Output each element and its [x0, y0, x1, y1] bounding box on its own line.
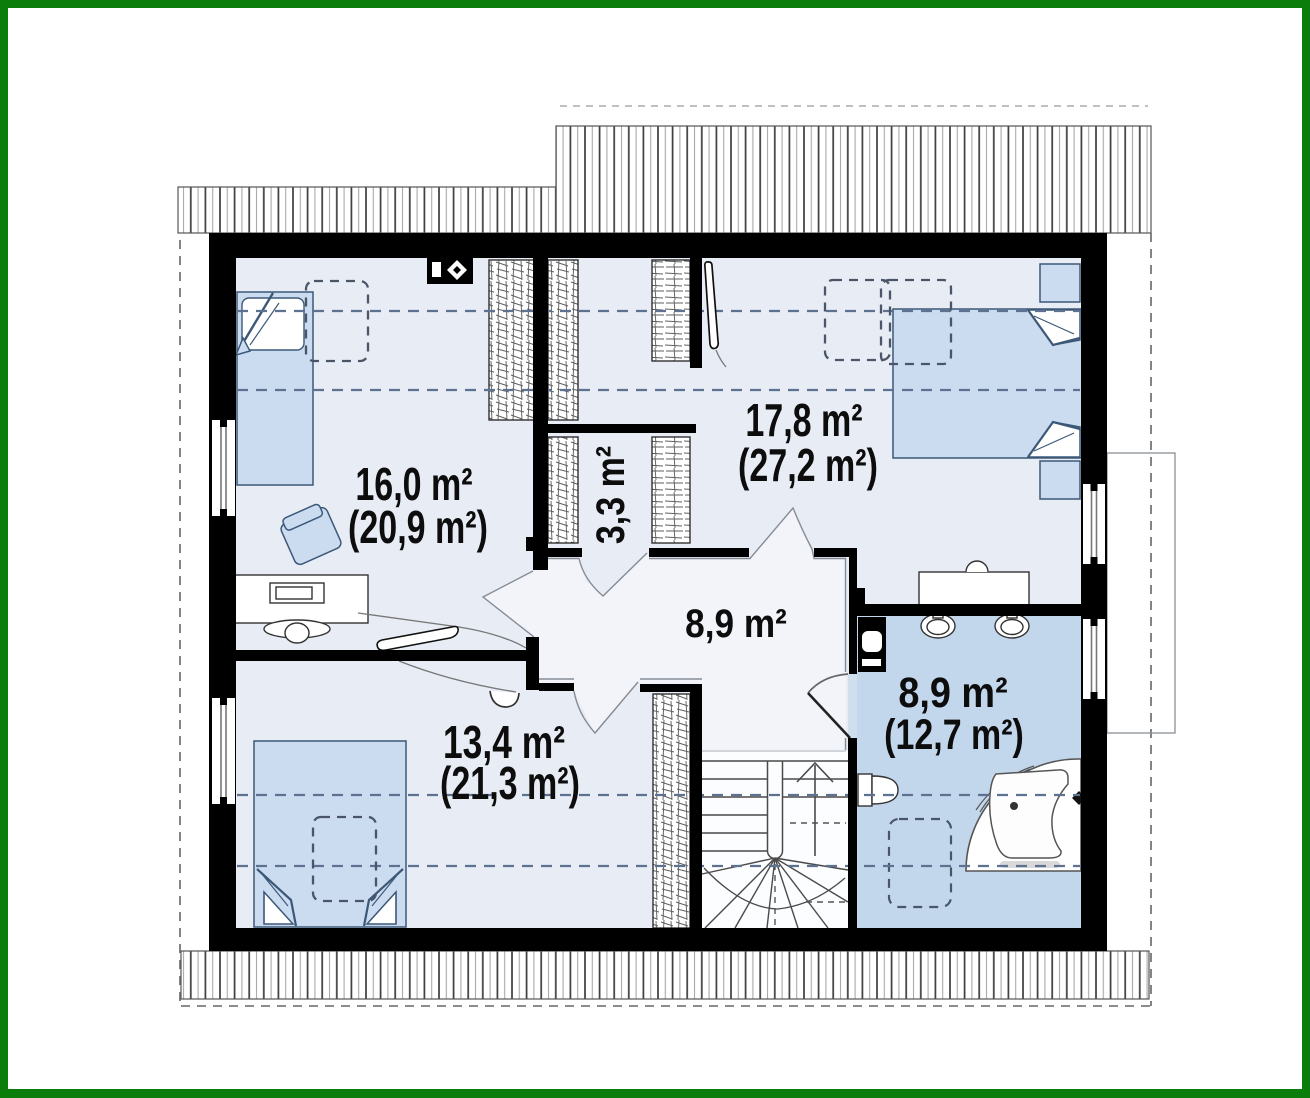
svg-text:8,9 m²: 8,9 m²	[685, 601, 787, 646]
svg-text:3,3 m²: 3,3 m²	[587, 446, 632, 544]
svg-text:(27,2 m²): (27,2 m²)	[738, 439, 878, 491]
svg-text:8,9 m²: 8,9 m²	[898, 668, 1007, 717]
svg-text:(20,9 m²): (20,9 m²)	[348, 501, 488, 553]
svg-text:(12,7 m²): (12,7 m²)	[884, 711, 1024, 759]
svg-text:(21,3 m²): (21,3 m²)	[440, 757, 580, 809]
